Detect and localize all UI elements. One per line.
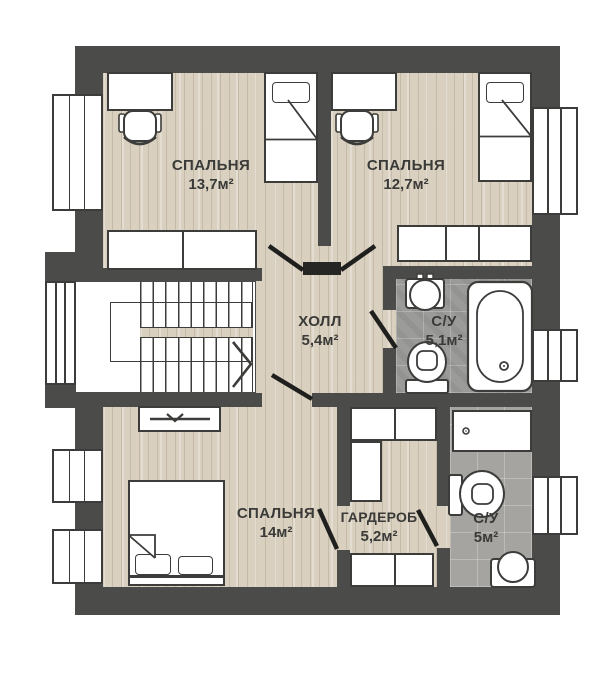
- office-chair: [336, 111, 378, 144]
- room-area: 5,2м²: [341, 527, 418, 546]
- door-leaf: [272, 375, 312, 399]
- room-area: 5,1м²: [426, 331, 463, 350]
- blanket-fold: [129, 535, 156, 558]
- room-label-hall: ХОЛЛ 5,4м²: [298, 312, 342, 350]
- room-area: 13,7м²: [172, 175, 250, 194]
- blanket-fold: [479, 100, 532, 137]
- room-name: ГАРДЕРОБ: [341, 508, 418, 527]
- room-label-bathroom-1: С/У 5,1м²: [426, 312, 463, 350]
- door-leaf: [341, 246, 375, 270]
- door-leaf: [371, 311, 396, 348]
- room-area: 14м²: [237, 523, 315, 542]
- room-area: 5,4м²: [298, 331, 342, 350]
- room-area: 12,7м²: [367, 175, 445, 194]
- door-leaf: [269, 246, 303, 270]
- room-label-bedroom-2: СПАЛЬНЯ 12,7м²: [367, 156, 445, 194]
- room-name: СПАЛЬНЯ: [172, 156, 250, 175]
- door-leaf: [319, 509, 337, 549]
- sink-icon: [406, 274, 444, 310]
- door-leaf: [418, 510, 437, 546]
- floor-plan: СПАЛЬНЯ 13,7м² СПАЛЬНЯ 12,7м² ХОЛЛ 5,4м²…: [0, 0, 616, 687]
- room-name: СПАЛЬНЯ: [237, 504, 315, 523]
- room-name: ХОЛЛ: [298, 312, 342, 331]
- room-label-bedroom-3: СПАЛЬНЯ 14м²: [237, 504, 315, 542]
- room-label-bedroom-1: СПАЛЬНЯ 13,7м²: [172, 156, 250, 194]
- room-name: С/У: [426, 312, 463, 331]
- room-area: 5м²: [473, 528, 499, 547]
- sink-icon: [491, 552, 535, 587]
- office-chair: [119, 111, 161, 144]
- room-name: С/У: [473, 509, 499, 528]
- blanket-fold: [265, 100, 318, 140]
- room-label-bathroom-2: С/У 5м²: [473, 509, 499, 547]
- room-label-wardrobe: ГАРДЕРОБ 5,2м²: [341, 508, 418, 546]
- stairs-direction-arrow: [233, 342, 251, 387]
- shower-drain: [463, 428, 469, 434]
- room-name: СПАЛЬНЯ: [367, 156, 445, 175]
- bathtub-icon: [468, 282, 532, 391]
